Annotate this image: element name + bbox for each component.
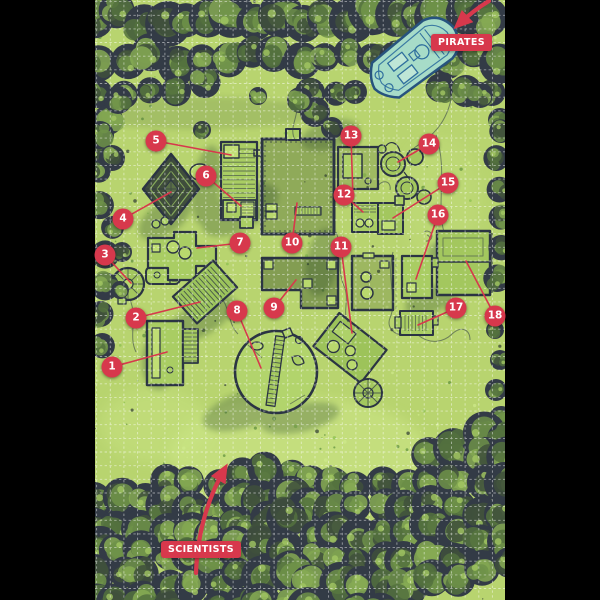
map-marker-4[interactable]: 4 bbox=[113, 209, 134, 230]
pump-house bbox=[395, 311, 438, 335]
scientists-label: SCIENTISTS bbox=[161, 541, 241, 558]
map-marker-8[interactable]: 8 bbox=[227, 301, 248, 322]
map-marker-6[interactable]: 6 bbox=[196, 166, 217, 187]
warehouse-building bbox=[432, 231, 492, 295]
map-marker-12[interactable]: 12 bbox=[334, 185, 355, 206]
battle-map-canvas: 123456789101112131415161718 PIRATES SCIE… bbox=[0, 0, 600, 600]
quarters-building bbox=[352, 253, 393, 310]
map-marker-11[interactable]: 11 bbox=[331, 237, 352, 258]
map-marker-10[interactable]: 10 bbox=[282, 233, 303, 254]
map-marker-5[interactable]: 5 bbox=[146, 131, 167, 152]
map-marker-7[interactable]: 7 bbox=[230, 233, 251, 254]
map-marker-16[interactable]: 16 bbox=[428, 205, 449, 226]
map-marker-3[interactable]: 3 bbox=[95, 245, 116, 266]
walled-compound bbox=[254, 129, 334, 234]
gear-wheel bbox=[354, 379, 382, 407]
map-marker-14[interactable]: 14 bbox=[419, 134, 440, 155]
battle-map bbox=[95, 0, 505, 600]
map-marker-17[interactable]: 17 bbox=[446, 298, 467, 319]
map-marker-18[interactable]: 18 bbox=[485, 306, 506, 327]
map-artwork bbox=[95, 0, 505, 600]
map-marker-9[interactable]: 9 bbox=[264, 298, 285, 319]
lab-building bbox=[338, 147, 378, 189]
map-marker-13[interactable]: 13 bbox=[341, 126, 362, 147]
map-marker-2[interactable]: 2 bbox=[126, 308, 147, 329]
map-marker-15[interactable]: 15 bbox=[438, 173, 459, 194]
map-marker-1[interactable]: 1 bbox=[102, 357, 123, 378]
pirates-label: PIRATES bbox=[431, 34, 492, 51]
